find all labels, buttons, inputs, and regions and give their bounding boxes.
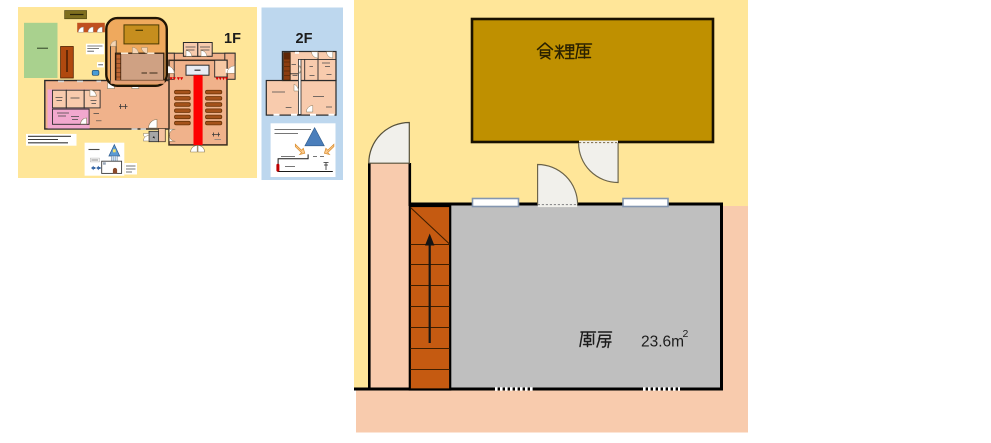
svg-text:2: 2 xyxy=(683,328,689,340)
svg-text:23.6m: 23.6m xyxy=(641,334,684,351)
svg-text:2F: 2F xyxy=(296,31,313,47)
svg-text:1F: 1F xyxy=(224,31,241,47)
